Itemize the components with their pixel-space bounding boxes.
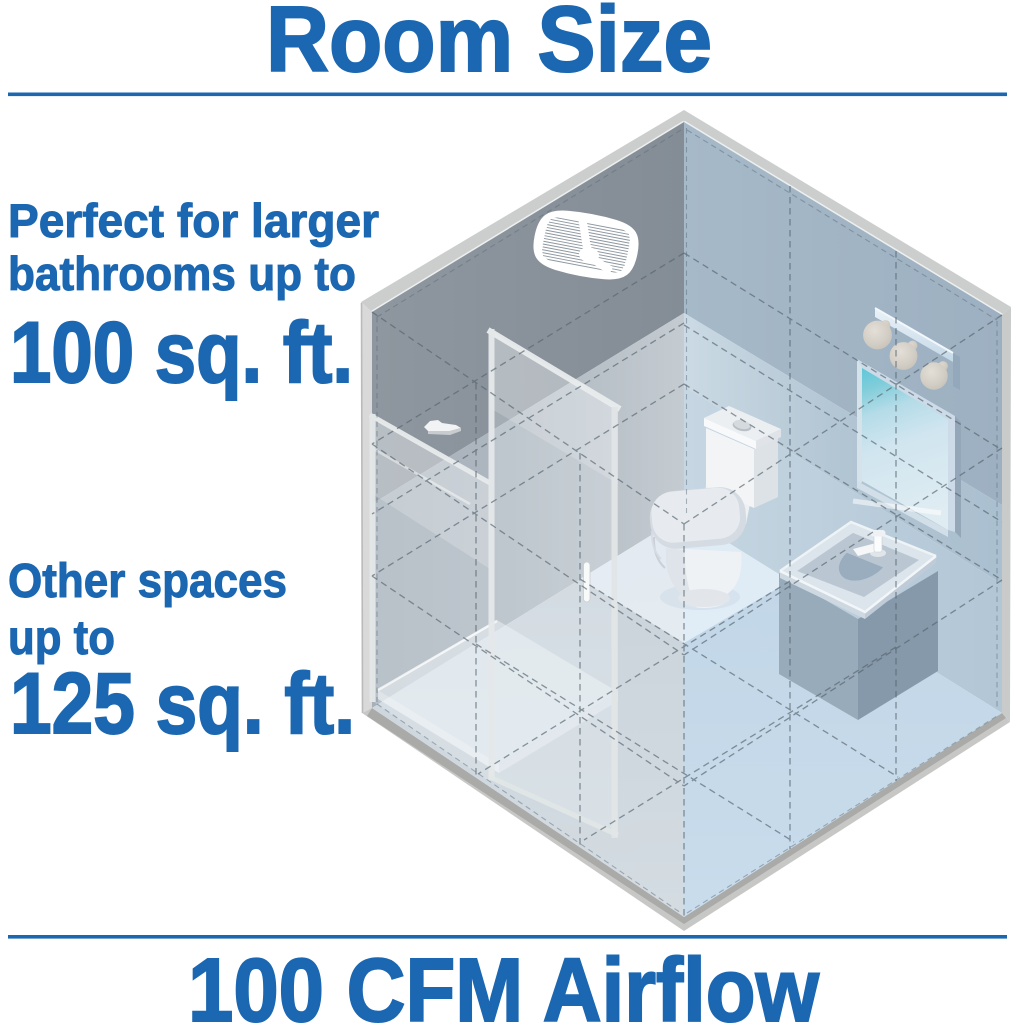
svg-text:Perfect for larger: Perfect for larger	[8, 194, 379, 247]
svg-text:100 CFM Airflow: 100 CFM Airflow	[188, 941, 820, 1024]
svg-text:Other spaces: Other spaces	[8, 555, 287, 608]
svg-text:100 sq. ft.: 100 sq. ft.	[10, 305, 353, 401]
svg-text:Room Size: Room Size	[266, 0, 712, 91]
svg-text:bathrooms up to: bathrooms up to	[8, 247, 356, 300]
svg-text:125 sq. ft.: 125 sq. ft.	[10, 656, 355, 752]
